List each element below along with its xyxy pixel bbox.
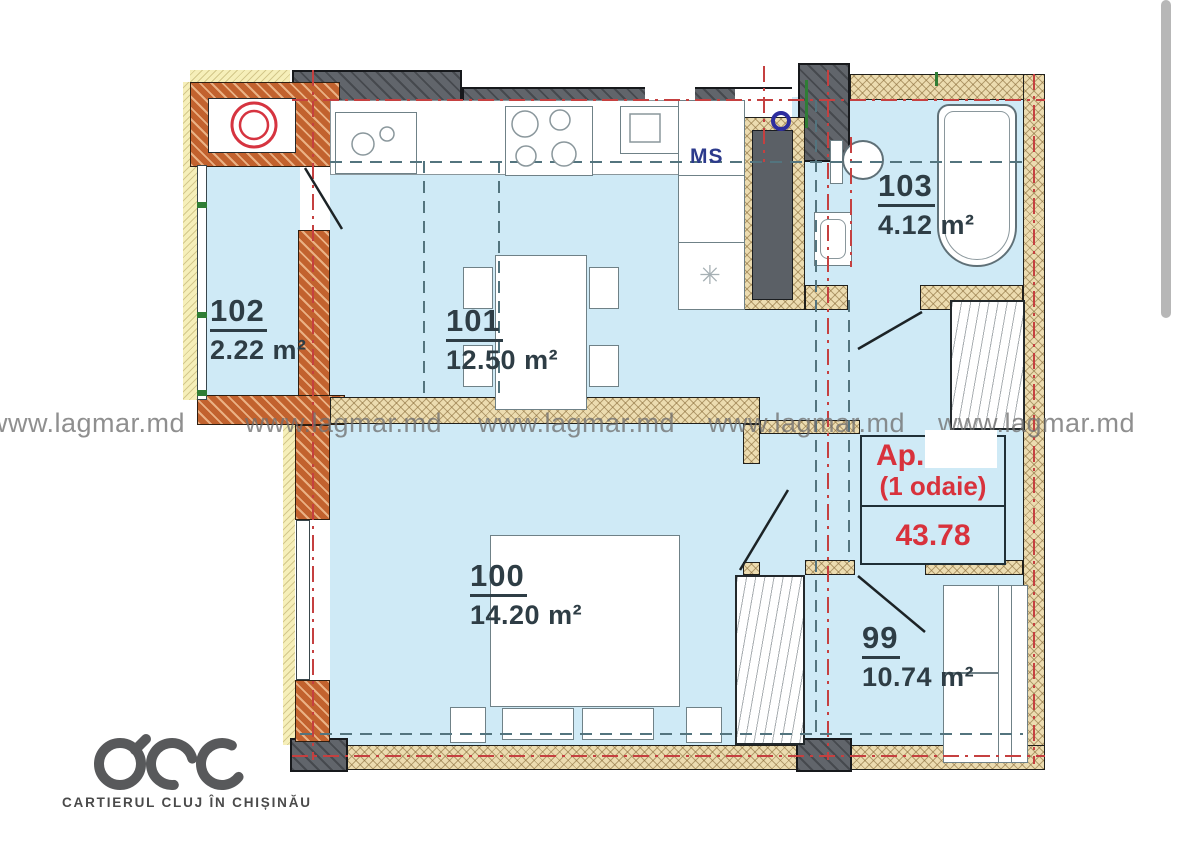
wall-top-bath — [850, 74, 1045, 100]
watermark-3: www.lagmar.md — [478, 408, 675, 439]
logo-glyph-c1 — [143, 735, 195, 789]
guide-dash-kitchen-1 — [423, 161, 425, 401]
nightstand-2 — [686, 707, 722, 743]
room-label-103: 103 4.12 m² — [878, 170, 975, 239]
room-number-102: 102 — [210, 295, 267, 332]
insulation-strip-top-left — [190, 70, 290, 82]
pillow-1 — [502, 708, 574, 740]
green-tick-bath — [935, 72, 938, 86]
apartment-total-area: 43.78 — [862, 519, 1004, 553]
balcony-glazing — [197, 165, 207, 400]
wall-room99-top-left — [805, 560, 855, 575]
room-label-100: 100 14.20 m² — [470, 560, 582, 629]
room-label-102: 102 2.22 m² — [210, 295, 307, 364]
kitchen-sink-unit — [335, 112, 417, 174]
glazing-tick-3 — [197, 390, 207, 396]
nightstand-1 — [450, 707, 486, 743]
fridge-icon: ✳ — [699, 260, 721, 291]
info-box-divider — [862, 505, 1004, 507]
stove — [505, 106, 593, 176]
redaction-patch — [925, 430, 997, 468]
niche-interior — [208, 98, 296, 153]
room-area-100: 14.20 m² — [470, 601, 582, 629]
glazing-tick-1 — [197, 202, 207, 208]
centerline-top — [292, 99, 1045, 101]
pillow-2 — [582, 708, 654, 740]
watermark-4: www.lagmar.md — [708, 408, 905, 439]
kitchen-appliance — [620, 106, 682, 154]
wall-bottom — [295, 745, 1045, 770]
room-area-102: 2.22 m² — [210, 336, 307, 364]
room-label-101: 101 12.50 m² — [446, 305, 558, 374]
room-area-103: 4.12 m² — [878, 211, 975, 239]
chair-right-1 — [589, 267, 619, 309]
logo-mark — [90, 733, 275, 795]
room100-wardrobe — [735, 575, 805, 745]
window-room100 — [296, 520, 310, 680]
apartment-prefix: Ap. — [876, 439, 924, 473]
room-label-99: 99 10.74 m² — [862, 622, 974, 691]
logo-glyph-a-tail — [135, 739, 146, 750]
apartment-type: (1 odaie) — [862, 471, 1004, 502]
wall-hall-jamb-lower — [743, 562, 760, 575]
sofa-backrest — [998, 585, 1012, 763]
bath-sink-basin — [820, 219, 846, 259]
shaft-label: MS — [690, 145, 724, 169]
chair-right-2 — [589, 345, 619, 387]
ventilation-shaft — [752, 130, 793, 300]
logo-caption: CARTIERUL CLUJ ÎN CHIȘINĂU — [62, 795, 312, 810]
room-area-101: 12.50 m² — [446, 346, 558, 374]
watermark-1: www.lagmar.md — [0, 408, 185, 439]
logo-glyph-c2 — [197, 741, 239, 789]
room-number-99: 99 — [862, 622, 900, 659]
centerline-bath-fixtures — [850, 137, 852, 267]
room-number-103: 103 — [878, 170, 935, 207]
developer-logo: CARTIERUL CLUJ ÎN CHIȘINĂU — [62, 733, 362, 823]
room-number-101: 101 — [446, 305, 503, 342]
room-number-100: 100 — [470, 560, 527, 597]
room-area-99: 10.74 m² — [862, 663, 974, 691]
centerline-shaft — [763, 66, 765, 162]
ms-cabinet-middle — [678, 175, 745, 243]
scrollbar-thumb[interactable] — [1161, 0, 1171, 318]
gas-riser-line — [805, 80, 808, 128]
watermark-2: www.lagmar.md — [245, 408, 442, 439]
guide-dash-bottom — [300, 733, 1023, 735]
centerline-bottom — [292, 755, 1045, 757]
guide-dash-top — [330, 161, 1023, 163]
glazing-tick-2 — [197, 312, 207, 318]
insulation-strip-room100 — [283, 425, 295, 745]
